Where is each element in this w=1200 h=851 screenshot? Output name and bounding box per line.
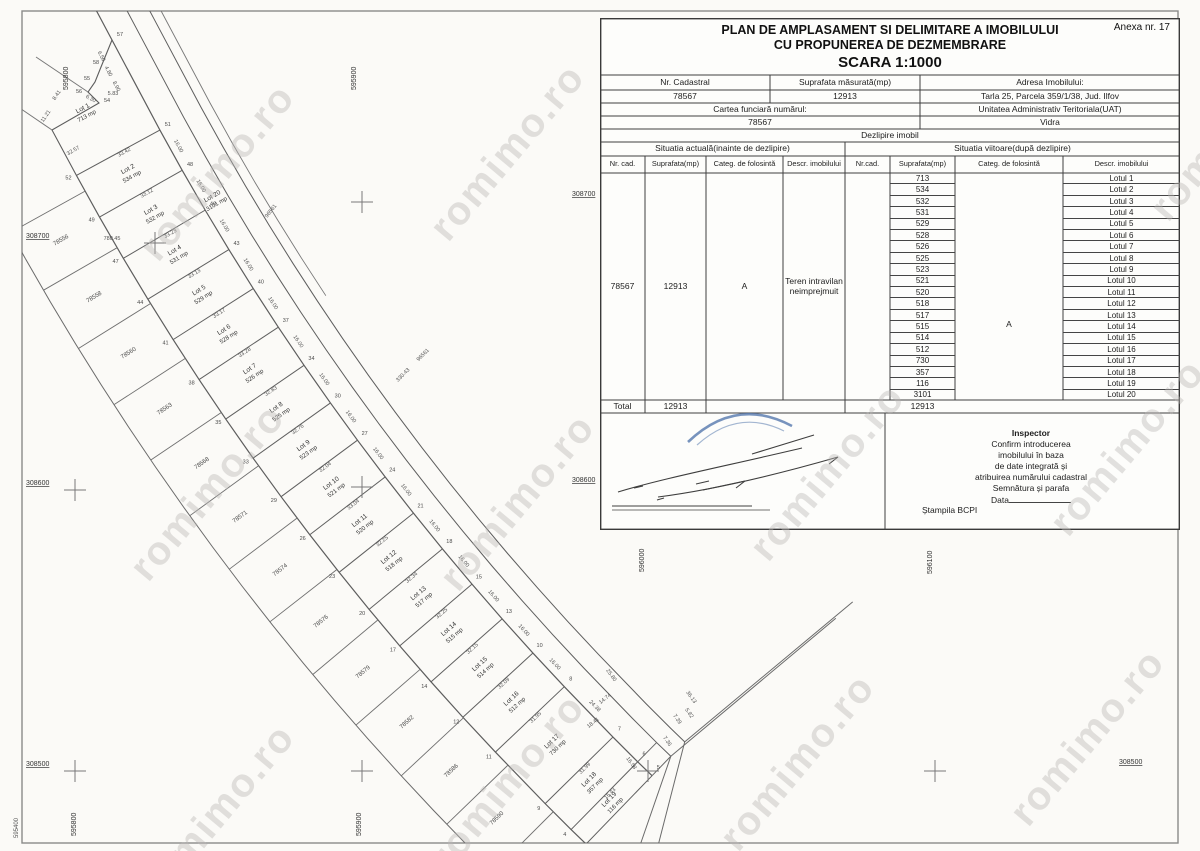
carte-funciara-header: Cartea funciară numărul: <box>600 103 920 116</box>
actual-nr-cad: 78567 <box>600 173 645 400</box>
viitoare-suprafata-cell: 525 <box>890 253 955 264</box>
boundary-polyline <box>97 0 685 742</box>
length-dimension: 32.25 <box>375 535 390 548</box>
viitoare-descriere-cell: Lotul 14 <box>1063 321 1180 332</box>
neighbor-parcel-number: 78576 <box>313 614 330 630</box>
col-header-right: Nr.cad. <box>845 156 890 173</box>
corner-point-number: 21 <box>417 504 423 510</box>
neighbor-parcel-number: 78560 <box>120 346 138 360</box>
total-right-value: 12913 <box>890 400 955 413</box>
inspector-text-line: Confirm introducerea <box>890 439 1172 450</box>
lot-label: Lot 8525 mp <box>266 399 292 424</box>
viitoare-suprafata-cell: 518 <box>890 298 955 309</box>
viitoare-descriere-cell: Lotul 12 <box>1063 298 1180 309</box>
actual-descriere: Teren intravilan neimprejmuit <box>783 173 845 400</box>
corner-point-number: 44 <box>137 300 143 306</box>
grid-coordinate-label: 596000 <box>639 549 646 572</box>
corner-point-number: 34 <box>308 356 314 362</box>
total-label: Total <box>600 400 645 413</box>
plan-title-line1: PLAN DE AMPLASAMENT SI DELIMITARE A IMOB… <box>600 23 1180 37</box>
lot-label: Lot 12518 mp <box>379 548 405 573</box>
lot-label: Lot 10521 mp <box>321 474 347 499</box>
neighbor-parcel-number: 78568 <box>194 456 212 471</box>
lot-label: Lot 16512 mp <box>502 689 528 714</box>
corner-point-number: 51 <box>165 122 171 128</box>
viitoare-suprafata-cell: 534 <box>890 184 955 195</box>
grid-coordinate-label: 308600 <box>26 480 49 487</box>
lot-label: Lot 17730 mp <box>542 732 568 758</box>
corner-point-number: 4 <box>563 832 566 838</box>
length-dimension: 33.23 <box>163 228 178 240</box>
edge-dimension: 16.00 <box>371 446 384 461</box>
suprafata-value: 12913 <box>770 90 920 103</box>
dimension-text: 8.41 <box>52 89 63 101</box>
corner-point-number: 10 <box>537 643 543 649</box>
viitoare-suprafata-cell: 512 <box>890 344 955 355</box>
corner-point-number: 49 <box>89 218 95 224</box>
viitoare-descriere-cell: Lotul 2 <box>1063 184 1180 195</box>
length-dimension: 33.04 <box>346 498 361 511</box>
viitoare-descriere-column: Lotul 1Lotul 2Lotul 3Lotul 4Lotul 5Lotul… <box>1063 173 1180 400</box>
dimension-text: 18.41 <box>586 717 601 730</box>
viitoare-suprafata-column: 7135345325315295285265255235215205185175… <box>890 173 955 400</box>
viitoare-descriere-cell: Lotul 1 <box>1063 173 1180 184</box>
edge-dimension: 16.00 <box>399 483 412 498</box>
corner-point-number: 7 <box>618 727 621 733</box>
corner-point-number: 27 <box>362 431 368 437</box>
edge-dimension: 16.00 <box>344 410 357 425</box>
corner-point-number: 56 <box>76 89 82 95</box>
length-dimension: 32.09 <box>497 677 511 691</box>
boundary-line <box>685 602 853 742</box>
grid-coordinate-label: 308700 <box>572 191 595 198</box>
corner-point-number: 57 <box>117 32 123 38</box>
viitoare-descriere-cell: Lotul 20 <box>1063 390 1180 400</box>
dezlipire-label: Dezlipire imobil <box>600 129 1180 142</box>
grid-coordinate-label: 595400 <box>14 817 20 838</box>
col-header-right: Descr. imobilului <box>1063 156 1180 173</box>
lot-label: Lot 5529 mp <box>189 282 215 306</box>
length-dimension: 32.15 <box>466 642 480 656</box>
lot-label: Lot 11520 mp <box>350 512 376 537</box>
col-header-left: Suprafata(mp) <box>645 156 706 173</box>
nr-cadastral-header: Nr. Cadastral <box>600 75 770 90</box>
neighbor-parcel-number: 78563 <box>156 402 174 417</box>
stamp-and-signature <box>600 396 900 530</box>
dimension-text: 4.80 <box>103 65 113 77</box>
neighbor-parcel-number: 78558 <box>86 290 104 304</box>
grid-coordinate-label: 596100 <box>927 551 934 574</box>
viitoare-descriere-cell: Lotul 6 <box>1063 230 1180 241</box>
dimension-text: 16.58 <box>624 756 637 771</box>
boundary-line <box>151 413 221 461</box>
boundary-line <box>190 466 259 516</box>
boundary-polyline <box>76 175 654 851</box>
viitoare-descriere-cell: Lotul 5 <box>1063 219 1180 230</box>
viitoare-suprafata-cell: 531 <box>890 207 955 218</box>
length-dimension: 32.04 <box>318 461 333 474</box>
corner-point-number: 24 <box>389 467 395 473</box>
inspector-title: Inspector <box>890 428 1172 439</box>
grid-cross <box>351 476 373 498</box>
dimension-text: 14.74 <box>598 693 613 706</box>
corner-point-number: 18 <box>446 539 452 545</box>
actual-suprafata: 12913 <box>645 173 706 400</box>
boundary-line <box>671 618 836 756</box>
grid-coordinate-label: 595900 <box>356 813 363 836</box>
corner-point-number: 40 <box>258 280 264 286</box>
corner-point-number: 46 <box>210 202 216 208</box>
viitoare-suprafata-cell: 730 <box>890 356 955 367</box>
lot-label: Lot 7526 mp <box>240 360 266 384</box>
viitoare-categ: A <box>955 318 1063 332</box>
viitoare-suprafata-cell: 514 <box>890 333 955 344</box>
corner-point-number: 9 <box>537 806 540 812</box>
plan-title-scale: SCARA 1:1000 <box>600 54 1180 71</box>
inspector-text-line: Semnătura și parafa <box>890 483 1172 494</box>
cadastral-plan-sheet: 7855678558785607856378568785717857478576… <box>0 0 1200 851</box>
adresa-header: Adresa Imobilului: <box>920 75 1180 90</box>
lot-label: Lot 6528 mp <box>214 321 240 345</box>
boundary-line <box>270 569 337 621</box>
corner-point-number: 35 <box>215 420 221 426</box>
lot-label: Lot 9523 mp <box>293 437 319 462</box>
corner-point-number: 29 <box>271 498 277 504</box>
viitoare-descriere-cell: Lotul 15 <box>1063 333 1180 344</box>
carte-funciara-value: 78567 <box>600 116 920 129</box>
corner-point-number: 26 <box>300 536 306 542</box>
length-dimension: 33.28 <box>238 347 253 360</box>
col-header-right: Categ. de folosintă <box>955 156 1063 173</box>
viitoare-suprafata-cell: 526 <box>890 241 955 252</box>
corner-point-number: 14 <box>421 684 427 690</box>
inspector-text-line: atribuirea numărului cadastral <box>890 472 1172 483</box>
length-dimension: 32.25 <box>435 607 449 621</box>
grid-cross <box>351 191 373 213</box>
adresa-value: Tarla 25, Parcela 359/1/38, Jud. Ilfov <box>920 90 1180 103</box>
dimension-text: 11.21 <box>40 109 52 123</box>
corner-point-number: 17 <box>390 648 396 654</box>
lot-label: Lot 2534 mp <box>118 161 144 185</box>
lot-label: Lot 4531 mp <box>164 242 190 266</box>
grid-cross <box>924 760 946 782</box>
boundary-line <box>36 57 88 92</box>
plan-title-line2: CU PROPUNEREA DE DEZMEMBRARE <box>600 38 1180 52</box>
neighbor-parcel-number: 78556 <box>52 234 70 248</box>
corner-point-number: 48 <box>187 162 193 168</box>
viitoare-descriere-cell: Lotul 3 <box>1063 196 1180 207</box>
neighbor-parcel-number: 78582 <box>399 714 416 730</box>
grid-coordinate-label: 308700 <box>26 233 49 240</box>
lot-label: Lot 1713 mp <box>72 101 98 124</box>
viitoare-suprafata-cell: 713 <box>890 173 955 184</box>
corner-point-number: 23 <box>329 574 335 580</box>
viitoare-suprafata-cell: 3101 <box>890 390 955 400</box>
length-dimension: 33.13 <box>187 268 202 280</box>
dimension-text: 25.80 <box>604 668 617 683</box>
corner-point-number: 52 <box>65 176 71 182</box>
viitoare-suprafata-cell: 515 <box>890 321 955 332</box>
inspector-text-line: de date integrată și <box>890 461 1172 472</box>
data-label: Data <box>991 495 1009 505</box>
col-header-left: Descr. imobilului <box>783 156 845 173</box>
viitoare-suprafata-cell: 529 <box>890 219 955 230</box>
grid-coordinate-label: 595900 <box>351 67 358 90</box>
dimension-text: 5.82 <box>683 707 694 719</box>
col-header-left: Nr. cad. <box>600 156 645 173</box>
length-dimension: 32.76 <box>291 423 306 436</box>
stampila-bcpi-label: Ștampila BCPI <box>922 505 977 515</box>
viitoare-descriere-cell: Lotul 18 <box>1063 367 1180 378</box>
viitoare-suprafata-cell: 523 <box>890 264 955 275</box>
lot-label: Lot 13517 mp <box>409 584 435 609</box>
neighbor-parcel-number: 78574 <box>272 562 289 577</box>
corner-point-number: 54 <box>104 98 110 104</box>
corner-point-number: 12 <box>453 719 459 725</box>
boundary-line <box>659 742 685 843</box>
uat-value: Vidra <box>920 116 1180 129</box>
situatia-viitoare-title: Situatia viitoare(după dezlipire) <box>845 142 1180 156</box>
neighbor-parcel-number: 78586 <box>444 763 461 779</box>
corner-point-number: 5 <box>657 765 660 771</box>
suprafata-header: Suprafata măsurată(mp) <box>770 75 920 90</box>
length-dimension: 31.95 <box>529 711 543 725</box>
boundary-polyline <box>104 0 326 296</box>
edge-dimension: 16.00 <box>548 657 562 671</box>
grid-coordinate-label: 595800 <box>71 813 78 836</box>
viitoare-suprafata-cell: 528 <box>890 230 955 241</box>
actual-categ: A <box>706 173 783 400</box>
boundary-polyline <box>26 259 643 851</box>
edge-dimension: 16.00 <box>266 296 279 311</box>
length-dimension: 32.34 <box>405 571 419 584</box>
inspector-box: Inspector Confirm introducereaimobilului… <box>890 428 1172 506</box>
boundary-line <box>652 756 671 775</box>
neighbor-parcel-number: 78571 <box>232 510 250 525</box>
corner-point-number: 41 <box>162 340 168 346</box>
viitoare-suprafata-cell: 521 <box>890 276 955 287</box>
dimension-text: 7.36 <box>661 735 672 747</box>
corner-point-number: 8 <box>569 677 572 683</box>
viitoare-suprafata-cell: 532 <box>890 196 955 207</box>
viitoare-descriere-cell: Lotul 16 <box>1063 344 1180 355</box>
viitoare-descriere-cell: Lotul 10 <box>1063 276 1180 287</box>
grid-cross <box>64 760 86 782</box>
edge-dimension: 16.00 <box>218 218 230 233</box>
edge-dimension: 16.00 <box>457 554 470 568</box>
viitoare-suprafata-cell: 517 <box>890 310 955 321</box>
edge-dimension: 16.00 <box>195 179 207 194</box>
corner-point-number: 43 <box>233 241 239 247</box>
corner-point-number: 58 <box>93 60 99 66</box>
inspector-text: Confirm introducereaimobilului în bazade… <box>890 439 1172 494</box>
uat-header: Unitatea Administrativ Teritoriala(UAT) <box>920 103 1180 116</box>
dimension-text: 7.39 <box>671 713 682 725</box>
corner-point-number: 15 <box>476 574 482 580</box>
corner-point-number: 13 <box>506 609 512 615</box>
corner-point-number: 55 <box>84 76 90 82</box>
viitoare-descriere-cell: Lotul 13 <box>1063 310 1180 321</box>
viitoare-descriere-cell: Lotul 19 <box>1063 378 1180 389</box>
viitoare-suprafata-cell: 116 <box>890 378 955 389</box>
grid-cross <box>64 479 86 501</box>
edge-dimension: 16.00 <box>242 257 254 272</box>
neighbor-parcel-number: 78590 <box>489 810 506 826</box>
length-dimension: 33.17 <box>212 307 227 319</box>
viitoare-suprafata-cell: 357 <box>890 367 955 378</box>
col-header-left: Categ. de folosintă <box>706 156 783 173</box>
corner-point-number: 11 <box>486 754 492 760</box>
col-header-right: Suprafata(mp) <box>890 156 955 173</box>
neighbor-parcel-number: 78579 <box>355 664 372 680</box>
round-stamp-inner-arc <box>697 422 784 445</box>
dimension-text: 96561 <box>416 348 431 363</box>
dimension-text: 36.13 <box>684 690 697 705</box>
grid-cross <box>351 760 373 782</box>
dimension-text: 32.57 <box>66 145 81 157</box>
viitoare-descriere-cell: Lotul 11 <box>1063 287 1180 298</box>
boundary-line <box>44 248 118 290</box>
signature-scribble <box>612 435 838 506</box>
grid-cross <box>637 760 659 782</box>
corner-point-number: 3 <box>578 847 581 851</box>
corner-point-number: 6 <box>642 751 645 757</box>
data-underline <box>1009 494 1071 503</box>
corner-point-number: 47 <box>113 259 119 265</box>
lot-label: Lot 15514 mp <box>470 655 496 680</box>
corner-point-number: 38 <box>189 381 195 387</box>
total-left-value: 12913 <box>645 400 706 413</box>
edge-dimension: 16.00 <box>172 139 184 154</box>
grid-coordinate-label: 308500 <box>1119 759 1142 766</box>
edge-dimension: 16.00 <box>317 372 330 387</box>
length-dimension: 32.83 <box>264 385 279 398</box>
length-dimension: 33.42 <box>117 147 132 159</box>
viitoare-descriere-cell: Lotul 9 <box>1063 264 1180 275</box>
edge-dimension: 16.00 <box>291 334 304 349</box>
corner-point-number: 20 <box>359 611 365 617</box>
edge-dimension: 16.00 <box>486 589 500 603</box>
boundary-line <box>638 743 657 762</box>
boundary-polyline <box>67 0 652 776</box>
lot-label: Lot 3532 mp <box>141 202 167 226</box>
viitoare-descriere-cell: Lotul 8 <box>1063 253 1180 264</box>
grid-coordinate-label: 595800 <box>63 67 70 90</box>
corner-point-number: 33 <box>243 459 249 465</box>
dimension-text: 780.45 <box>104 236 121 242</box>
actual-descriere-line2: neimprejmuit <box>790 287 839 297</box>
dimension-text: 330.43 <box>395 367 411 383</box>
corner-point-number: 30 <box>335 394 341 400</box>
edge-dimension: 16.00 <box>427 519 440 533</box>
viitoare-descriere-cell: Lotul 17 <box>1063 356 1180 367</box>
length-dimension: 33.12 <box>140 188 155 200</box>
boundary-polyline <box>84 0 671 756</box>
round-stamp-arc <box>688 414 792 442</box>
inspector-text-line: imobilului în baza <box>890 450 1172 461</box>
boundary-line <box>78 303 150 348</box>
boundary-line <box>229 518 297 569</box>
situatia-actuala-title: Situatia actuală(inainte de dezlipire) <box>600 142 845 156</box>
grid-coordinate-label: 308500 <box>26 761 49 768</box>
viitoare-suprafata-cell: 520 <box>890 287 955 298</box>
grid-coordinate-label: 308600 <box>572 477 595 484</box>
nr-cadastral-value: 78567 <box>600 90 770 103</box>
dimension-text: 5.83 <box>108 91 119 97</box>
boundary-line <box>114 358 185 404</box>
lot-label: Lot 14515 mp <box>439 620 465 645</box>
corner-point-number: 37 <box>283 318 289 324</box>
viitoare-descriere-cell: Lotul 7 <box>1063 241 1180 252</box>
edge-dimension: 16.00 <box>517 623 531 637</box>
title-block: Anexa nr. 17 PLAN DE AMPLASAMENT SI DELI… <box>600 18 1180 530</box>
viitoare-descriere-cell: Lotul 4 <box>1063 207 1180 218</box>
